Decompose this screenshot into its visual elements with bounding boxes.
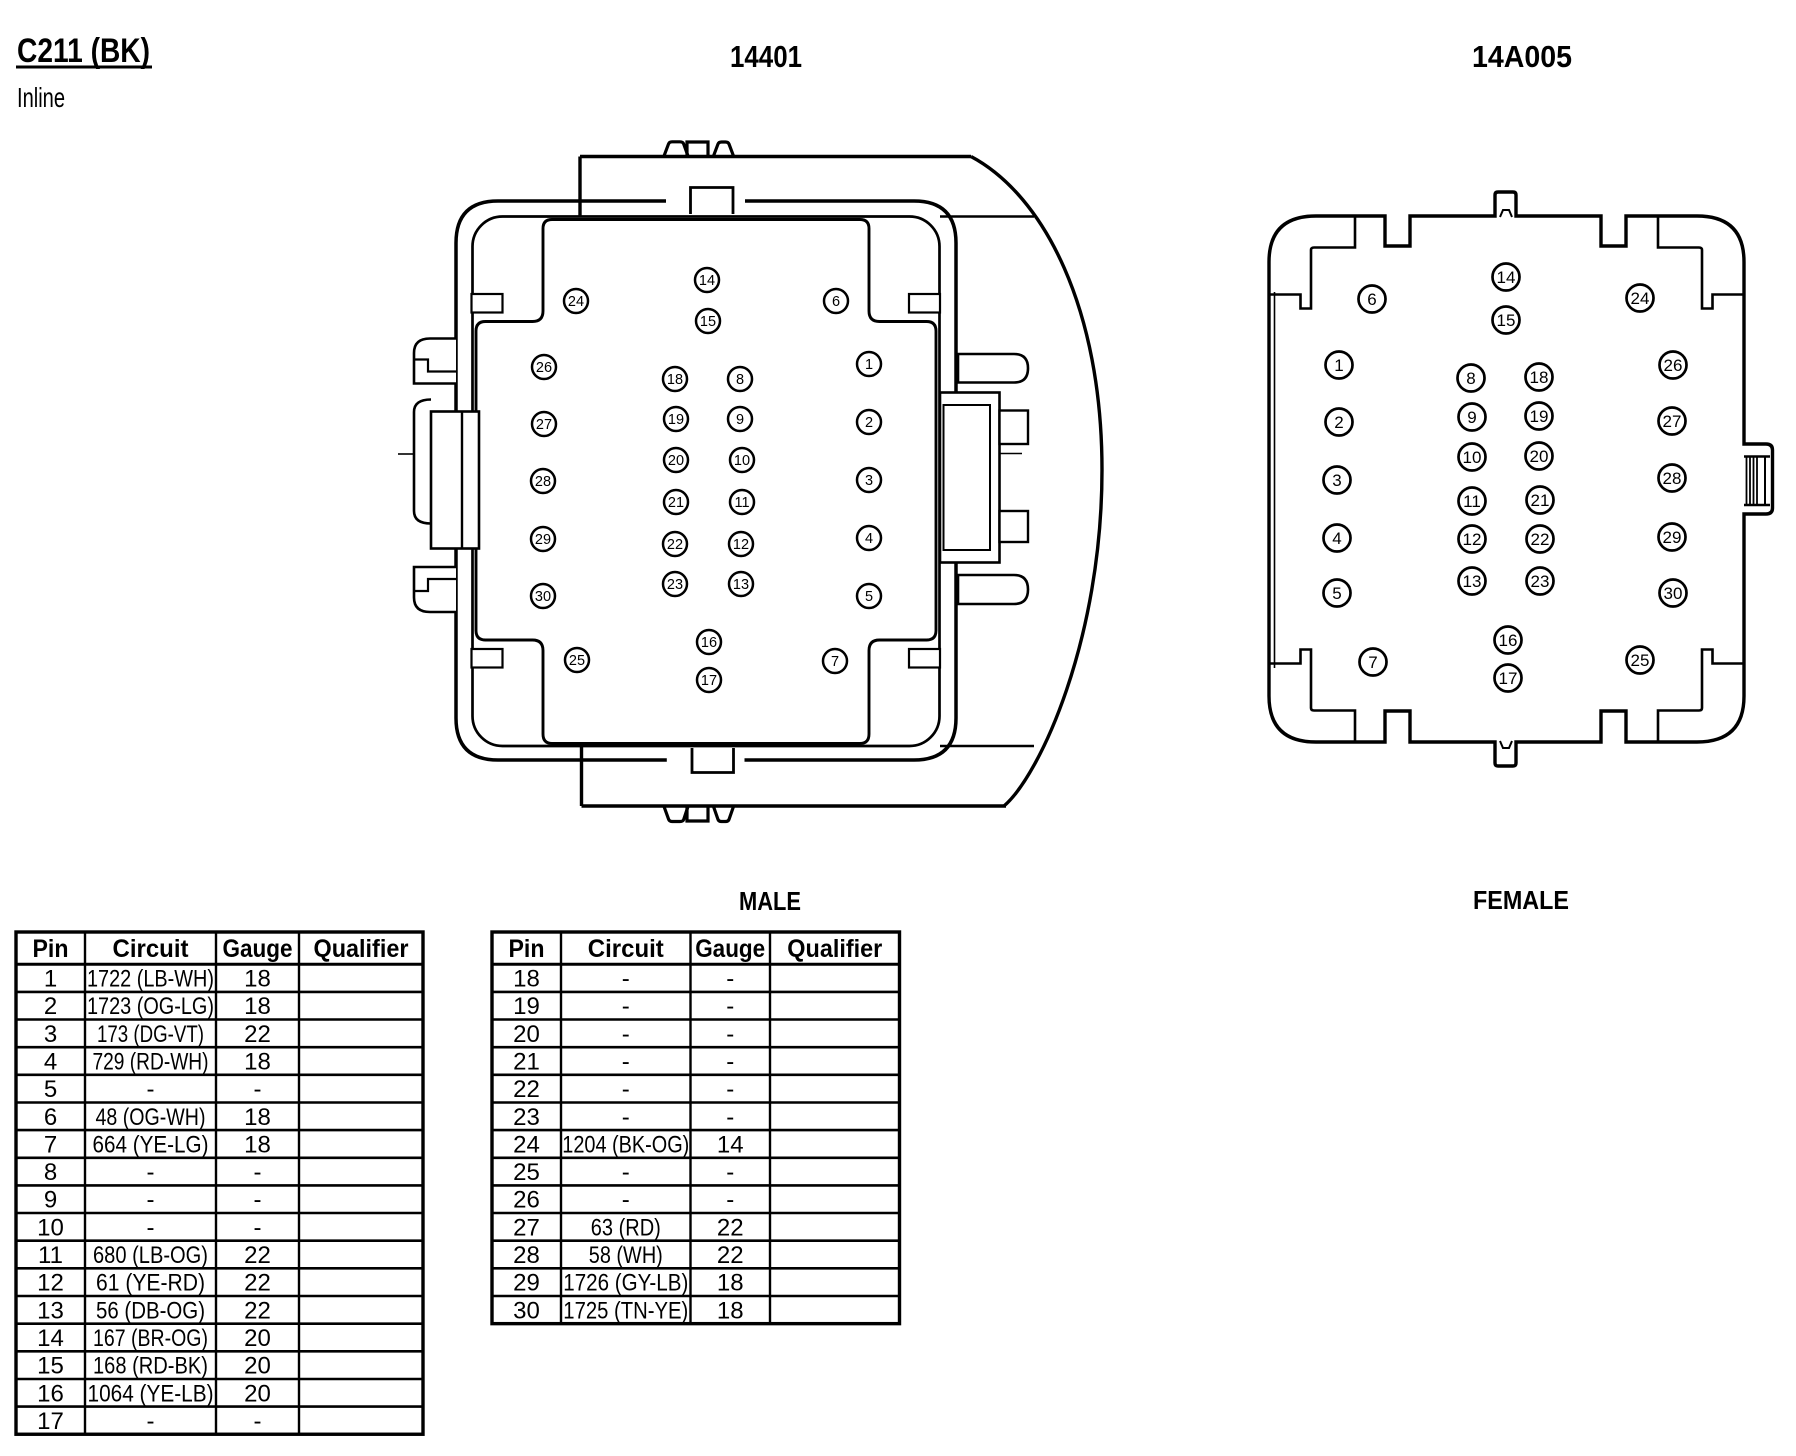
svg-text:17: 17	[701, 673, 717, 689]
svg-text:Gauge: Gauge	[223, 935, 293, 963]
svg-text:23: 23	[667, 577, 683, 593]
svg-text:20: 20	[244, 1353, 271, 1380]
svg-text:-: -	[726, 993, 734, 1020]
svg-text:13: 13	[37, 1297, 64, 1324]
svg-text:17: 17	[37, 1408, 64, 1435]
svg-text:56 (DB-OG): 56 (DB-OG)	[96, 1297, 205, 1324]
svg-text:19: 19	[668, 412, 684, 428]
svg-text:5: 5	[1332, 584, 1341, 603]
svg-text:-: -	[726, 1104, 734, 1131]
svg-text:8: 8	[44, 1159, 57, 1186]
svg-text:14401: 14401	[730, 39, 802, 74]
svg-text:48 (OG-WH): 48 (OG-WH)	[96, 1104, 206, 1131]
svg-text:-: -	[622, 1159, 630, 1186]
svg-text:18: 18	[1530, 368, 1549, 387]
svg-text:3: 3	[1332, 471, 1341, 490]
svg-text:-: -	[726, 1159, 734, 1186]
svg-text:-: -	[622, 1104, 630, 1131]
svg-text:30: 30	[513, 1297, 540, 1324]
svg-text:-: -	[726, 1187, 734, 1214]
svg-text:14: 14	[699, 273, 715, 289]
svg-text:1: 1	[865, 357, 873, 373]
svg-text:17: 17	[1499, 669, 1518, 688]
svg-text:61 (YE-RD): 61 (YE-RD)	[96, 1270, 205, 1297]
svg-text:1725 (TN-YE): 1725 (TN-YE)	[563, 1297, 688, 1324]
svg-text:19: 19	[1530, 407, 1549, 426]
svg-text:22: 22	[1531, 530, 1550, 549]
svg-text:23: 23	[1531, 572, 1550, 591]
svg-text:-: -	[726, 1049, 734, 1076]
svg-text:10: 10	[1463, 448, 1482, 467]
svg-text:-: -	[726, 966, 734, 993]
svg-text:-: -	[254, 1187, 262, 1214]
svg-text:-: -	[147, 1159, 155, 1186]
svg-text:15: 15	[37, 1353, 64, 1380]
svg-text:1064 (YE-LB): 1064 (YE-LB)	[88, 1380, 214, 1407]
svg-text:Circuit: Circuit	[113, 935, 190, 963]
svg-text:1726 (GY-LB): 1726 (GY-LB)	[563, 1270, 688, 1297]
svg-text:27: 27	[513, 1214, 540, 1241]
svg-text:6: 6	[44, 1104, 57, 1131]
svg-text:1: 1	[44, 966, 57, 993]
svg-text:18: 18	[244, 1104, 271, 1131]
svg-text:-: -	[622, 1187, 630, 1214]
svg-text:8: 8	[1466, 369, 1475, 388]
svg-text:22: 22	[244, 1270, 271, 1297]
svg-text:5: 5	[44, 1076, 57, 1103]
svg-text:18: 18	[717, 1270, 744, 1297]
svg-text:22: 22	[513, 1076, 540, 1103]
svg-text:13: 13	[733, 577, 749, 593]
svg-text:22: 22	[717, 1242, 744, 1269]
svg-text:4: 4	[1332, 529, 1341, 548]
svg-text:25: 25	[1631, 651, 1650, 670]
svg-text:7: 7	[44, 1131, 57, 1158]
svg-text:9: 9	[1467, 408, 1476, 427]
svg-text:664 (YE-LG): 664 (YE-LG)	[93, 1131, 209, 1158]
svg-text:18: 18	[717, 1297, 744, 1324]
svg-text:5: 5	[865, 589, 873, 605]
svg-text:26: 26	[1664, 356, 1683, 375]
svg-text:-: -	[622, 1049, 630, 1076]
svg-text:-: -	[147, 1408, 155, 1435]
svg-text:23: 23	[513, 1104, 540, 1131]
svg-text:58 (WH): 58 (WH)	[589, 1242, 663, 1269]
svg-text:11: 11	[1463, 492, 1481, 511]
svg-text:18: 18	[244, 993, 271, 1020]
svg-text:16: 16	[1499, 631, 1518, 650]
svg-text:16: 16	[701, 635, 717, 651]
svg-text:MALE: MALE	[739, 886, 801, 916]
svg-text:-: -	[726, 1021, 734, 1048]
svg-text:11: 11	[38, 1242, 63, 1269]
svg-text:10: 10	[37, 1214, 64, 1241]
svg-text:14A005: 14A005	[1472, 39, 1572, 74]
svg-text:1: 1	[1334, 356, 1343, 375]
svg-text:-: -	[147, 1076, 155, 1103]
svg-text:30: 30	[535, 589, 551, 605]
svg-text:18: 18	[244, 1131, 271, 1158]
svg-text:14: 14	[37, 1325, 64, 1352]
svg-text:168 (RD-BK): 168 (RD-BK)	[93, 1353, 208, 1380]
svg-text:Qualifier: Qualifier	[314, 935, 409, 963]
svg-text:-: -	[254, 1159, 262, 1186]
svg-text:24: 24	[568, 294, 584, 310]
svg-text:15: 15	[700, 314, 716, 330]
svg-text:7: 7	[831, 654, 839, 670]
svg-text:27: 27	[1663, 412, 1682, 431]
svg-text:Pin: Pin	[509, 935, 545, 963]
svg-text:6: 6	[832, 294, 840, 310]
svg-text:26: 26	[513, 1187, 540, 1214]
svg-text:-: -	[254, 1408, 262, 1435]
svg-text:21: 21	[513, 1049, 540, 1076]
svg-text:24: 24	[513, 1131, 540, 1158]
svg-text:22: 22	[244, 1242, 271, 1269]
svg-text:173 (DG-VT): 173 (DG-VT)	[97, 1021, 204, 1048]
svg-text:1204 (BK-OG): 1204 (BK-OG)	[562, 1131, 689, 1158]
svg-text:15: 15	[1497, 311, 1516, 330]
svg-text:167 (BR-OG): 167 (BR-OG)	[93, 1325, 208, 1352]
svg-text:28: 28	[1663, 469, 1682, 488]
svg-text:20: 20	[513, 1021, 540, 1048]
svg-text:1722 (LB-WH): 1722 (LB-WH)	[87, 966, 214, 993]
svg-text:29: 29	[513, 1270, 540, 1297]
svg-text:19: 19	[513, 993, 540, 1020]
svg-text:20: 20	[244, 1325, 271, 1352]
svg-text:29: 29	[1663, 528, 1682, 547]
svg-text:-: -	[147, 1214, 155, 1241]
svg-text:4: 4	[865, 531, 873, 547]
svg-text:2: 2	[1334, 413, 1343, 432]
svg-text:Gauge: Gauge	[695, 935, 765, 963]
svg-text:-: -	[622, 1076, 630, 1103]
svg-text:Pin: Pin	[33, 935, 69, 963]
svg-text:14: 14	[717, 1131, 744, 1158]
svg-text:-: -	[254, 1076, 262, 1103]
svg-text:21: 21	[1531, 491, 1550, 510]
svg-text:-: -	[254, 1214, 262, 1241]
svg-text:29: 29	[535, 532, 551, 548]
svg-text:21: 21	[668, 495, 684, 511]
svg-text:25: 25	[513, 1159, 540, 1186]
svg-text:22: 22	[244, 1021, 271, 1048]
svg-text:12: 12	[733, 537, 749, 553]
svg-text:63 (RD): 63 (RD)	[591, 1214, 661, 1241]
svg-text:18: 18	[513, 966, 540, 993]
svg-text:9: 9	[736, 412, 744, 428]
svg-text:28: 28	[513, 1242, 540, 1269]
svg-text:30: 30	[1664, 584, 1683, 603]
svg-text:7: 7	[1368, 653, 1377, 672]
svg-text:14: 14	[1497, 268, 1516, 287]
svg-text:22: 22	[717, 1214, 744, 1241]
svg-text:10: 10	[734, 453, 750, 469]
svg-text:25: 25	[569, 653, 585, 669]
svg-text:-: -	[622, 1021, 630, 1048]
svg-text:Inline: Inline	[17, 82, 65, 113]
svg-text:20: 20	[1530, 447, 1549, 466]
svg-text:28: 28	[535, 474, 551, 490]
svg-text:22: 22	[667, 537, 683, 553]
svg-text:18: 18	[244, 966, 271, 993]
svg-text:18: 18	[244, 1049, 271, 1076]
svg-text:16: 16	[37, 1380, 64, 1407]
svg-text:2: 2	[44, 993, 57, 1020]
svg-text:12: 12	[1463, 530, 1482, 549]
svg-text:20: 20	[244, 1380, 271, 1407]
svg-text:27: 27	[536, 417, 552, 433]
svg-text:22: 22	[244, 1297, 271, 1324]
svg-text:12: 12	[37, 1270, 64, 1297]
svg-text:Circuit: Circuit	[588, 935, 665, 963]
svg-text:-: -	[726, 1076, 734, 1103]
svg-text:3: 3	[44, 1021, 57, 1048]
svg-text:Qualifier: Qualifier	[787, 935, 882, 963]
svg-text:9: 9	[44, 1187, 57, 1214]
svg-text:11: 11	[734, 495, 749, 511]
svg-text:20: 20	[668, 453, 684, 469]
svg-text:2: 2	[865, 415, 873, 431]
svg-text:13: 13	[1463, 572, 1482, 591]
svg-text:-: -	[622, 966, 630, 993]
svg-text:1723 (OG-LG): 1723 (OG-LG)	[87, 993, 214, 1020]
svg-text:18: 18	[667, 372, 683, 388]
svg-text:4: 4	[44, 1049, 57, 1076]
svg-text:26: 26	[536, 360, 552, 376]
svg-text:6: 6	[1367, 290, 1376, 309]
svg-text:-: -	[622, 993, 630, 1020]
svg-text:680 (LB-OG): 680 (LB-OG)	[93, 1242, 208, 1269]
svg-text:3: 3	[865, 473, 873, 489]
svg-text:24: 24	[1631, 289, 1650, 308]
svg-text:8: 8	[736, 372, 744, 388]
svg-text:-: -	[147, 1187, 155, 1214]
svg-text:C211 (BK): C211 (BK)	[17, 32, 150, 70]
svg-text:729 (RD-WH): 729 (RD-WH)	[93, 1049, 209, 1076]
svg-text:FEMALE: FEMALE	[1473, 885, 1569, 915]
